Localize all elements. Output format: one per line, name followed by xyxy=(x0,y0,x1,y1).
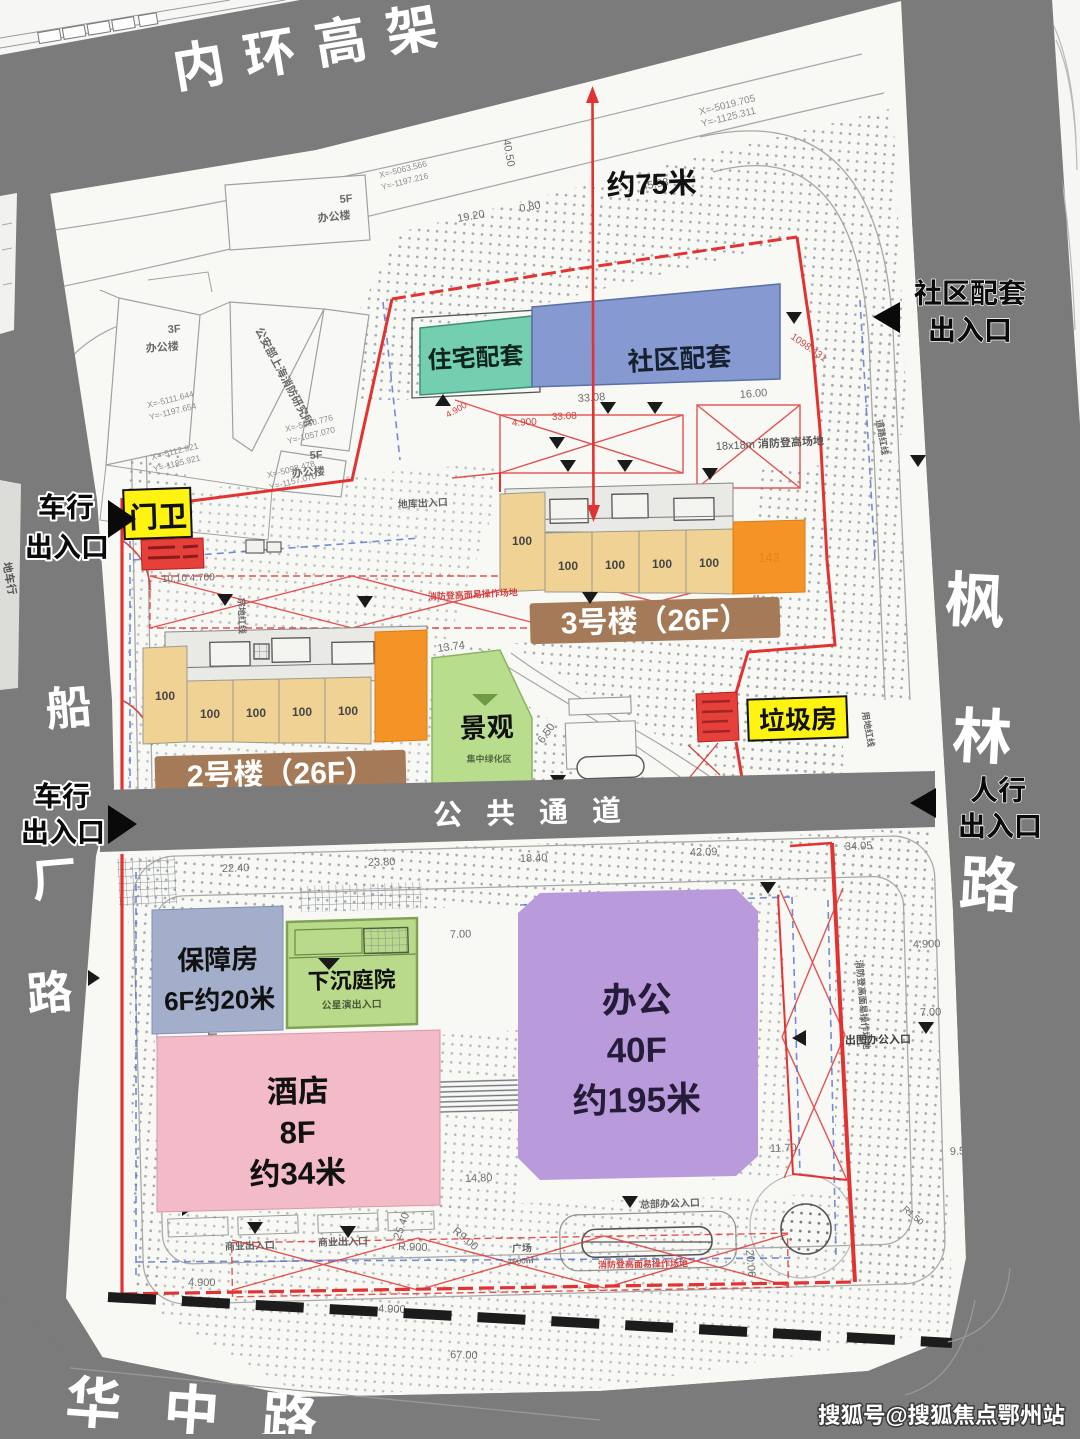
svg-text:100: 100 xyxy=(155,687,175,704)
svg-text:100: 100 xyxy=(292,703,312,720)
svg-text:4.900: 4.900 xyxy=(913,935,941,952)
svg-text:中: 中 xyxy=(161,1365,223,1434)
svg-text:42.09: 42.09 xyxy=(690,843,718,860)
svg-text:7.00: 7.00 xyxy=(920,1003,942,1020)
svg-text:100: 100 xyxy=(338,702,358,719)
svg-text:厂: 厂 xyxy=(29,842,81,912)
svg-text:100: 100 xyxy=(558,557,578,574)
svg-text:办公楼: 办公楼 xyxy=(145,338,179,356)
svg-text:100: 100 xyxy=(605,556,625,573)
svg-text:33.08: 33.08 xyxy=(551,407,577,423)
svg-text:100: 100 xyxy=(200,705,220,722)
svg-text:路: 路 xyxy=(24,955,76,1025)
svg-text:出入口: 出入口 xyxy=(21,811,105,851)
svg-text:100: 100 xyxy=(512,532,532,549)
svg-text:总部办公入口: 总部办公入口 xyxy=(640,1194,700,1211)
svg-text:8F: 8F xyxy=(279,1107,316,1153)
svg-text:社区配套: 社区配套 xyxy=(627,336,733,378)
svg-text:出入口: 出入口 xyxy=(958,805,1042,845)
svg-text:社区配套: 社区配套 xyxy=(914,272,1026,312)
svg-text:公星演出入口: 公星演出入口 xyxy=(321,995,381,1012)
svg-text:路: 路 xyxy=(957,836,1021,926)
svg-text:3F: 3F xyxy=(167,320,181,337)
svg-text:船: 船 xyxy=(43,670,95,740)
svg-text:公共通道: 公共通道 xyxy=(432,787,645,835)
svg-text:商业出入口: 商业出入口 xyxy=(318,1232,368,1249)
svg-text:保障房: 保障房 xyxy=(177,937,259,978)
svg-text:景观: 景观 xyxy=(459,705,514,746)
svg-text:1000㎡: 1000㎡ xyxy=(508,1255,534,1267)
svg-text:林: 林 xyxy=(950,688,1014,778)
svg-text:出入口: 出入口 xyxy=(25,526,109,566)
svg-text:出图办公入口: 出图办公入口 xyxy=(845,1031,911,1048)
svg-text:消防登高面易操作场地: 消防登高面易操作场地 xyxy=(598,1256,688,1271)
svg-text:100: 100 xyxy=(652,555,672,572)
svg-text:住宅配套: 住宅配套 xyxy=(427,336,525,376)
svg-text:人行: 人行 xyxy=(970,769,1026,809)
svg-text:143: 143 xyxy=(758,547,780,566)
svg-text:100: 100 xyxy=(246,704,266,721)
svg-text:商业出入口: 商业出入口 xyxy=(225,1236,275,1253)
svg-text:4.900: 4.900 xyxy=(511,413,537,429)
svg-text:23.80: 23.80 xyxy=(368,853,396,870)
svg-text:酒店: 酒店 xyxy=(266,1065,329,1112)
svg-text:14.80: 14.80 xyxy=(465,1169,493,1186)
svg-text:下沉庭院: 下沉庭院 xyxy=(307,962,396,996)
svg-text:6F约20米: 6F约20米 xyxy=(164,979,276,1019)
svg-text:18.40: 18.40 xyxy=(520,849,548,866)
svg-text:16.00: 16.00 xyxy=(739,384,768,402)
svg-text:4.900: 4.900 xyxy=(378,1300,406,1317)
svg-text:广场: 广场 xyxy=(512,1239,533,1255)
svg-text:搜狐号@搜狐焦点鄂州站: 搜狐号@搜狐焦点鄂州站 xyxy=(818,1398,1065,1430)
svg-text:4.900: 4.900 xyxy=(188,1274,216,1290)
svg-text:5F: 5F xyxy=(339,190,354,207)
svg-text:10.10 4.700: 10.10 4.700 xyxy=(162,568,216,585)
svg-text:22.40: 22.40 xyxy=(222,859,250,876)
svg-text:7.00: 7.00 xyxy=(450,925,472,942)
svg-text:车行: 车行 xyxy=(34,775,90,815)
svg-text:路: 路 xyxy=(259,1373,321,1434)
svg-text:67.00: 67.00 xyxy=(450,1346,478,1363)
svg-text:40F: 40F xyxy=(606,1021,667,1073)
svg-text:办公: 办公 xyxy=(601,971,672,1023)
svg-text:集中绿化区: 集中绿化区 xyxy=(466,752,511,765)
svg-text:枫: 枫 xyxy=(943,552,1007,642)
svg-text:地库出入口: 地库出入口 xyxy=(397,493,448,511)
svg-text:出入口: 出入口 xyxy=(928,309,1012,349)
svg-text:约195米: 约195米 xyxy=(572,1071,701,1124)
svg-text:车行: 车行 xyxy=(38,486,94,526)
svg-text:垃圾房: 垃圾房 xyxy=(758,699,837,739)
svg-text:宗地红线: 宗地红线 xyxy=(235,598,249,634)
svg-text:100: 100 xyxy=(699,554,719,571)
svg-text:门卫: 门卫 xyxy=(128,493,187,537)
svg-text:约34米: 约34米 xyxy=(249,1147,347,1195)
svg-text:34.05: 34.05 xyxy=(845,837,873,854)
svg-text:约75米: 约75米 xyxy=(606,159,698,204)
